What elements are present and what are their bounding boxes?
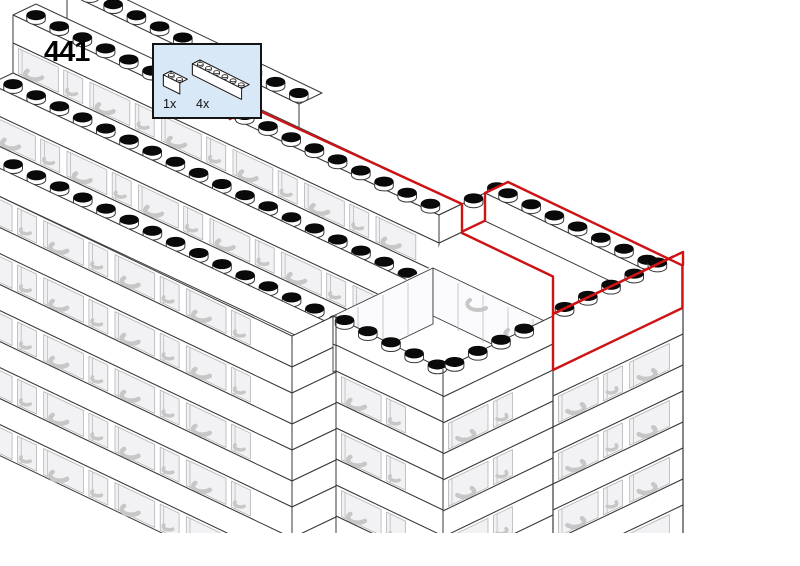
part-count-1x2-label: 1x xyxy=(163,97,176,111)
building-root xyxy=(0,0,683,566)
part-count-1x6-label: 4x xyxy=(196,97,209,111)
building-illustration xyxy=(0,0,800,566)
step-number: 441 xyxy=(44,38,89,67)
part-brick-shapes xyxy=(163,60,249,99)
parts-callout-box: 1x 4x xyxy=(152,43,262,119)
instruction-page: 441 1x 4x xyxy=(0,0,800,566)
